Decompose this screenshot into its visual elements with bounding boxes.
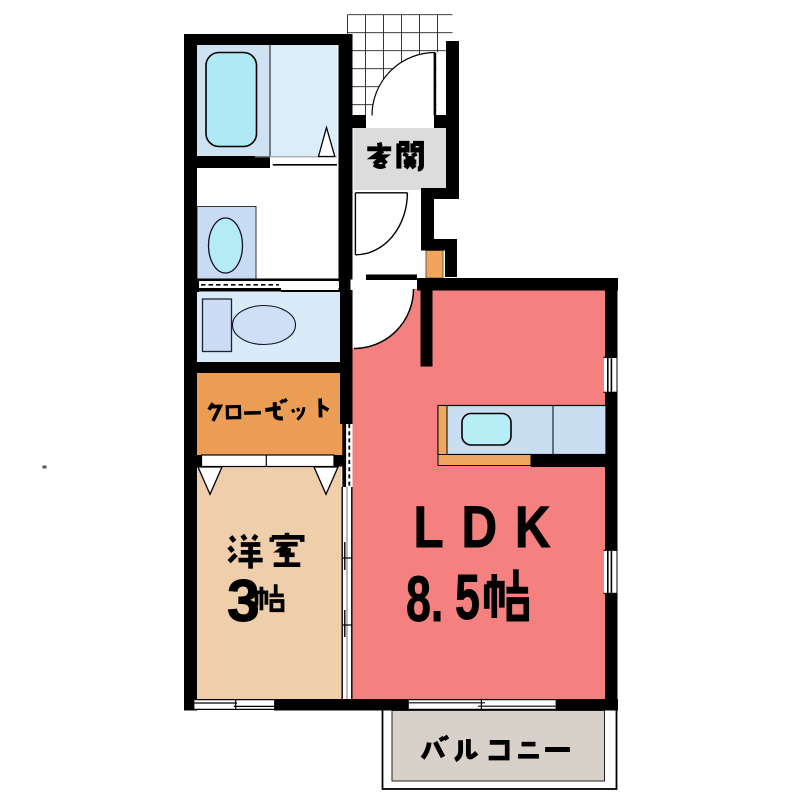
svg-text:LDK: LDK <box>414 495 569 560</box>
svg-text:5: 5 <box>455 561 480 633</box>
svg-text:8.: 8. <box>406 563 443 635</box>
